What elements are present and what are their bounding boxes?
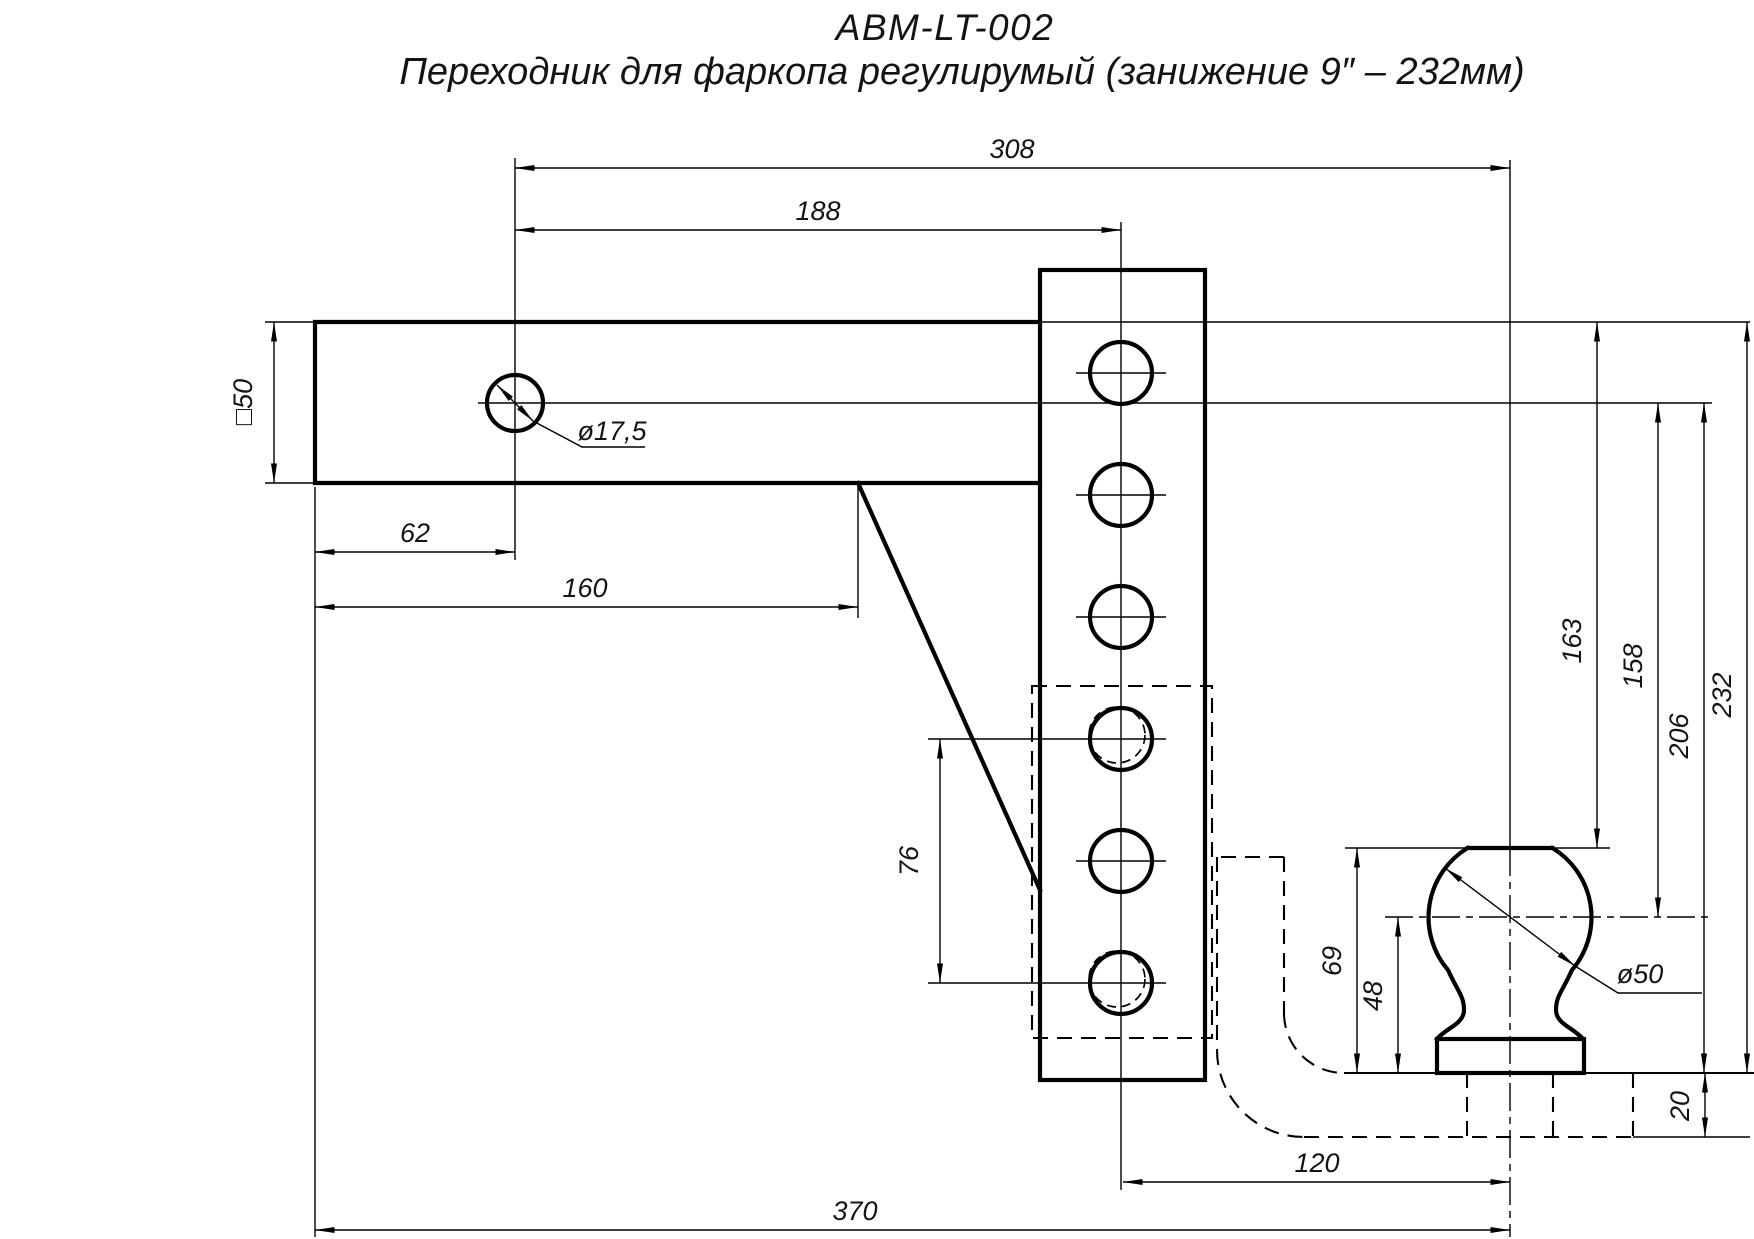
dim-163: 163: [1557, 618, 1587, 663]
dim-188: 188: [795, 196, 840, 226]
dim-370: 370: [832, 1196, 877, 1226]
adjustment-channel: [1040, 270, 1205, 1080]
extension-lines: [265, 158, 1754, 1237]
dimension-lines: [274, 168, 1747, 1230]
alt-hole-4: [1089, 707, 1145, 763]
drop-arm-hidden: [1217, 857, 1633, 1137]
dim-232: 232: [1707, 672, 1737, 718]
dim-62: 62: [400, 518, 430, 548]
centerlines: [1385, 848, 1712, 1237]
dim-20: 20: [1665, 1091, 1695, 1122]
dim-ball-dia: ø50: [1617, 959, 1664, 989]
part-number: ABM-LT-002: [834, 7, 1055, 48]
alternate-position-outline: [1032, 686, 1633, 1137]
dim-206: 206: [1664, 712, 1694, 759]
alt-hole-6: [1089, 951, 1145, 1007]
drawing-title: Переходник для фаркопа регулирумый (зани…: [399, 51, 1524, 93]
dim-69: 69: [1317, 946, 1347, 976]
dim-160: 160: [562, 573, 607, 603]
dim-pin-hole-dia: ø17,5: [577, 416, 647, 446]
dim-square-50: □50: [228, 379, 258, 425]
dim-308: 308: [989, 134, 1034, 164]
dim-120: 120: [1294, 1148, 1339, 1178]
dim-158: 158: [1618, 643, 1648, 688]
dim-48: 48: [1358, 981, 1388, 1011]
shank-tube: [315, 322, 1040, 890]
gusset-line: [858, 483, 1040, 890]
technical-drawing: ABM-LT-002 Переходник для фаркопа регули…: [0, 0, 1754, 1239]
drawing-sheet: ABM-LT-002 Переходник для фаркопа регули…: [0, 0, 1754, 1239]
dim-76: 76: [894, 845, 924, 876]
